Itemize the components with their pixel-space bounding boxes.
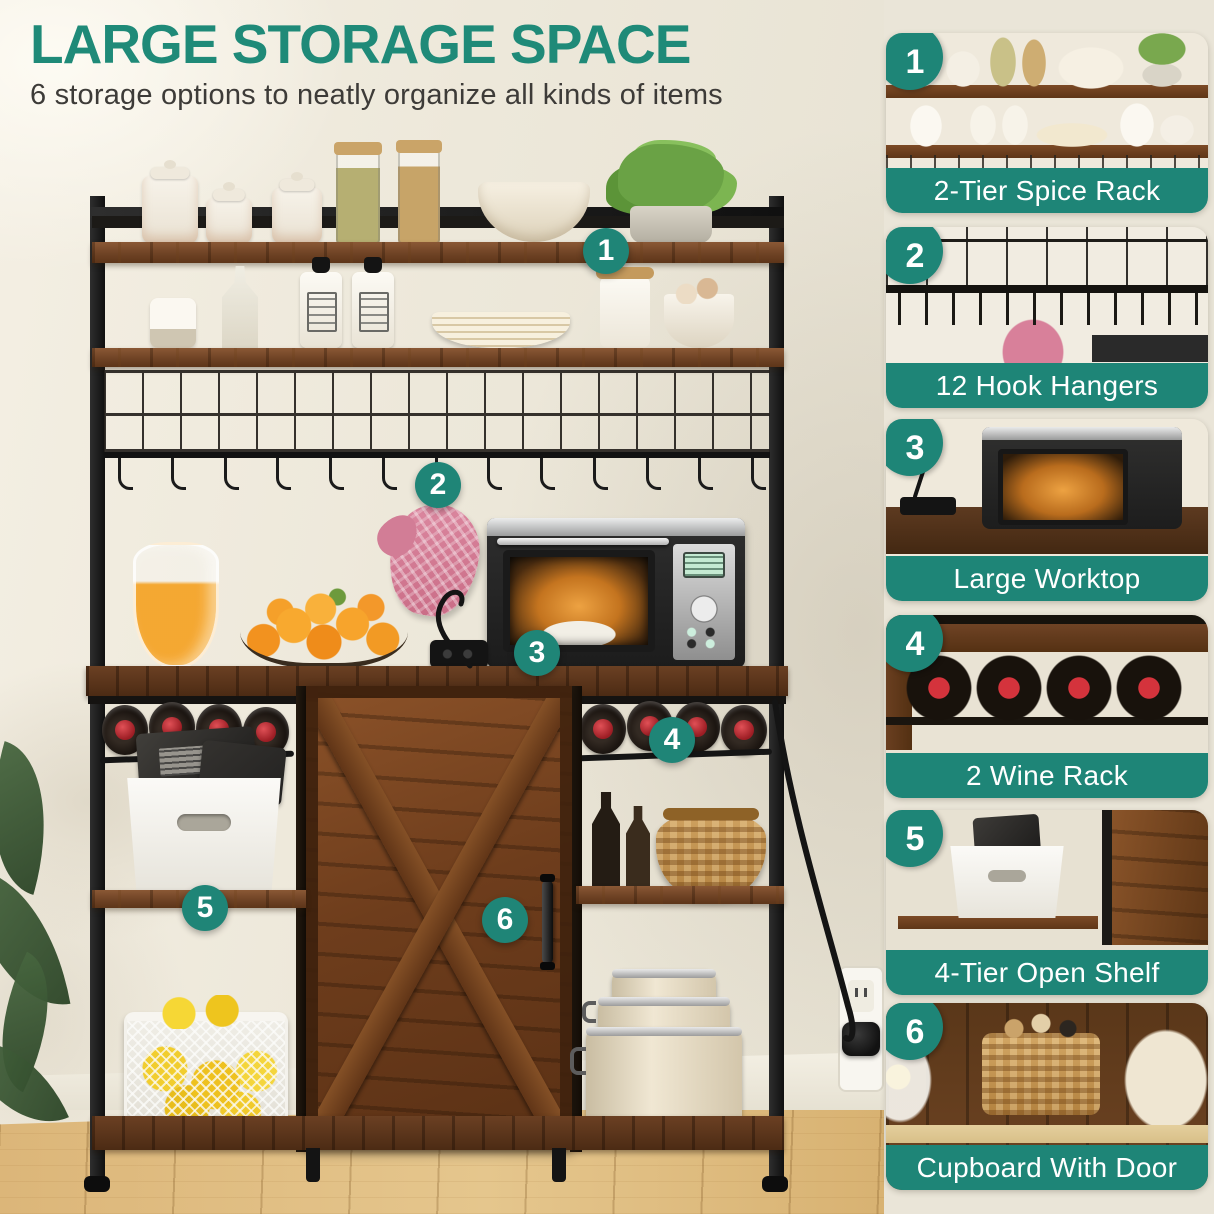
s-hook — [224, 458, 239, 490]
glass-spice-jar — [336, 152, 380, 244]
callout-number: 2 — [430, 468, 447, 502]
feature-label: 2 Wine Rack — [886, 753, 1208, 798]
feature-card-hook-hangers: 12 Hook Hangers 2 — [886, 227, 1208, 408]
callout-3: 3 — [514, 630, 560, 676]
s-hook — [382, 458, 397, 490]
s-hook — [487, 458, 502, 490]
pot-stack — [578, 975, 768, 1137]
callout-1: 1 — [583, 228, 629, 274]
wire-grid-panel — [104, 370, 770, 452]
callout-number: 3 — [529, 636, 546, 670]
s-hook — [276, 458, 291, 490]
lidded-canister — [600, 276, 650, 348]
main-product-photo: 1 2 3 4 5 6 — [0, 0, 884, 1214]
potted-plant-foliage — [618, 144, 724, 212]
white-storage-bin — [124, 778, 284, 896]
door-handle — [542, 880, 553, 964]
ceramic-canister — [272, 188, 322, 244]
bottom-shelf — [92, 1116, 784, 1150]
callout-4: 4 — [649, 717, 695, 763]
spice-rack-shelf-1 — [92, 242, 784, 263]
small-jar — [150, 298, 196, 348]
feature-label: Cupboard With Door — [886, 1145, 1208, 1190]
page-subtitle: 6 storage options to neatly organize all… — [30, 79, 723, 112]
thumbnail-oven — [982, 427, 1182, 529]
wine-bottle — [721, 705, 767, 755]
page-title: LARGE STORAGE SPACE — [30, 16, 723, 74]
callout-number: 4 — [664, 723, 681, 757]
feature-card-open-shelf: 4-Tier Open Shelf 5 — [886, 810, 1208, 995]
thumbnail-wicker-basket — [982, 1033, 1100, 1115]
feature-label-text: Cupboard With Door — [917, 1152, 1178, 1184]
oven-display — [683, 552, 725, 578]
oven-handle — [497, 538, 669, 545]
header: LARGE STORAGE SPACE 6 storage options to… — [30, 16, 723, 112]
oven-control-panel — [673, 544, 735, 660]
feature-label: 2-Tier Spice Rack — [886, 168, 1208, 213]
feature-label-text: 2-Tier Spice Rack — [934, 175, 1161, 207]
s-hook — [540, 458, 555, 490]
s-hook — [118, 458, 133, 490]
callout-5: 5 — [182, 885, 228, 931]
orange-fruit-basket — [240, 588, 408, 668]
wine-bottle — [580, 704, 626, 754]
thumbnail-power-dock — [900, 497, 956, 515]
shaker-bottle — [352, 272, 394, 348]
feature-number: 5 — [906, 820, 925, 859]
s-hook — [698, 458, 713, 490]
planter-pot — [630, 206, 712, 243]
callout-number: 1 — [598, 234, 615, 268]
s-hook — [171, 458, 186, 490]
pot-handle — [582, 1001, 596, 1023]
callout-number: 6 — [497, 903, 514, 937]
feature-card-worktop: Large Worktop 3 — [886, 419, 1208, 601]
juice-pitcher — [133, 542, 219, 668]
s-hook — [646, 458, 661, 490]
feature-number: 3 — [906, 429, 925, 468]
feature-label-text: 2 Wine Rack — [966, 760, 1128, 792]
rack-right-foot — [762, 1176, 788, 1192]
open-shelf-right — [576, 886, 784, 904]
spice-rack-shelf-2 — [92, 348, 784, 367]
ceramic-canister — [142, 176, 198, 244]
feature-label-text: Large Worktop — [953, 563, 1140, 595]
feature-number: 4 — [906, 625, 925, 664]
feature-number: 2 — [906, 237, 925, 276]
callout-2: 2 — [415, 462, 461, 508]
feature-card-spice-rack: 2-Tier Spice Rack 1 — [886, 33, 1208, 213]
rack-left-foot — [84, 1176, 110, 1192]
callout-number: 5 — [197, 891, 214, 925]
feature-label-text: 12 Hook Hangers — [936, 370, 1158, 402]
feature-number: 6 — [906, 1013, 925, 1052]
feature-label-text: 4-Tier Open Shelf — [934, 957, 1159, 989]
ceramic-canister — [206, 198, 252, 244]
cabinet-foot — [306, 1148, 320, 1182]
s-hook — [751, 458, 766, 490]
power-plug — [842, 1022, 880, 1056]
shaker-bottle — [300, 272, 342, 348]
feature-number: 1 — [906, 43, 925, 82]
barn-door — [306, 686, 572, 1150]
pot-handle — [570, 1047, 586, 1075]
feature-label: Large Worktop — [886, 556, 1208, 601]
s-hook — [593, 458, 608, 490]
thumbnail-storage-bin — [948, 846, 1066, 918]
feature-card-wine-rack: 2 Wine Rack 4 — [886, 615, 1208, 798]
feature-label: 4-Tier Open Shelf — [886, 950, 1208, 995]
feature-label: 12 Hook Hangers — [886, 363, 1208, 408]
glass-spice-jar — [398, 150, 440, 244]
power-strip-dock — [430, 640, 488, 668]
feature-card-cupboard: Cupboard With Door 6 — [886, 1003, 1208, 1190]
s-hook — [329, 458, 344, 490]
callout-6: 6 — [482, 897, 528, 943]
cabinet-foot — [552, 1148, 566, 1182]
